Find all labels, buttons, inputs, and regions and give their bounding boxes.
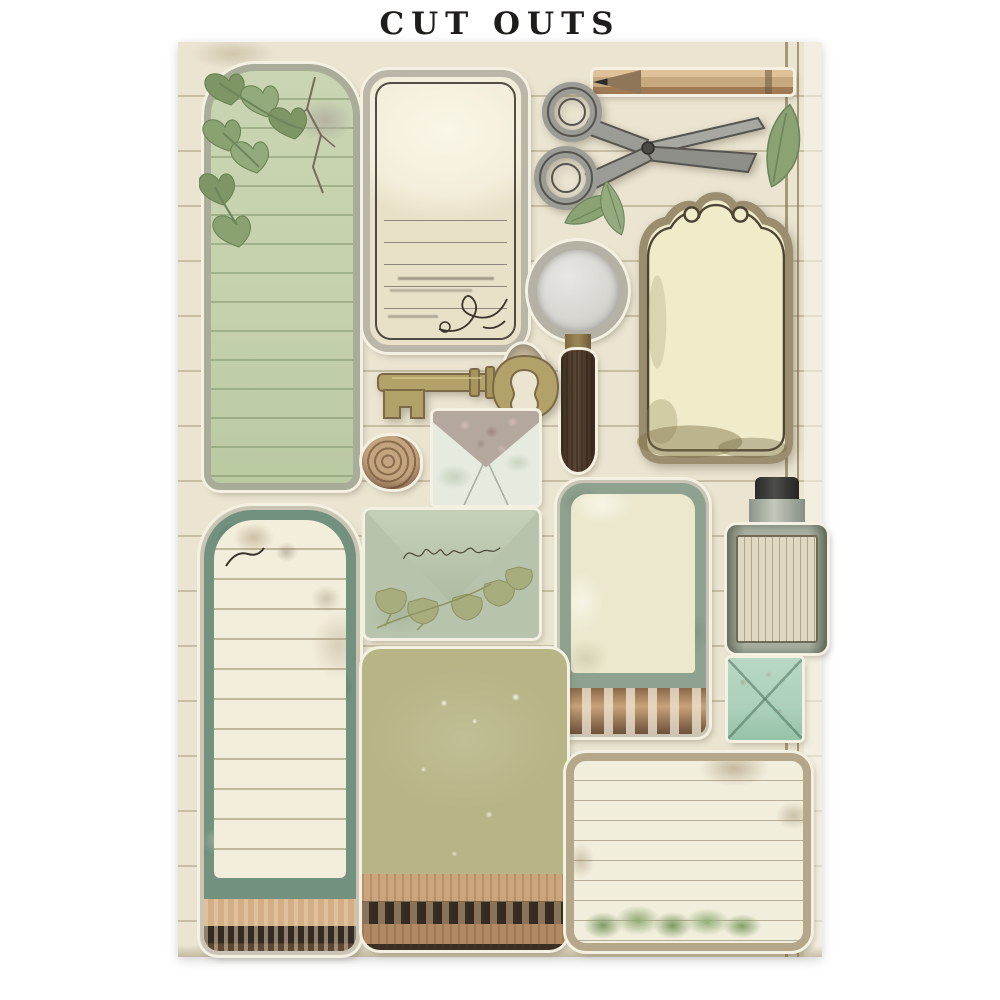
- olive-speckled-card: [362, 649, 567, 950]
- lined-note-card: [566, 753, 811, 951]
- printed-text-smudge: [388, 315, 438, 318]
- magnifier-lens: [528, 241, 628, 341]
- bottle-label: [736, 535, 818, 643]
- lined-paper: [214, 520, 346, 878]
- ginkgo-leaves: [371, 562, 535, 632]
- wooden-base: [560, 688, 706, 734]
- corner-flourish: [435, 279, 513, 337]
- carved-pattern: [362, 902, 567, 924]
- ornate-label: [630, 180, 802, 466]
- open-envelope: [433, 411, 539, 505]
- pencil-band: [765, 70, 772, 94]
- wooden-base: [204, 899, 356, 951]
- foliage-watercolor: [580, 905, 773, 939]
- teal-tall-tag: [200, 506, 360, 955]
- ivy-journaling-tag: [204, 64, 360, 490]
- teal-border: [204, 510, 356, 951]
- page-title: CUT OUTS: [0, 6, 1000, 42]
- ink-scribble: [222, 542, 268, 572]
- mint-envelope: [728, 658, 802, 740]
- sage-envelope: [365, 510, 539, 638]
- cream-ornate-tag: [363, 70, 528, 352]
- magnifier-handle: [561, 350, 595, 472]
- torn-paper: [571, 494, 695, 673]
- snail-shell: [362, 436, 420, 489]
- product-image: CUT OUTS: [0, 0, 1000, 1000]
- sage-tag: [557, 480, 709, 737]
- apothecary-bottle: [727, 477, 827, 653]
- ivy-leaves: [199, 63, 329, 273]
- envelope-body: [433, 411, 539, 505]
